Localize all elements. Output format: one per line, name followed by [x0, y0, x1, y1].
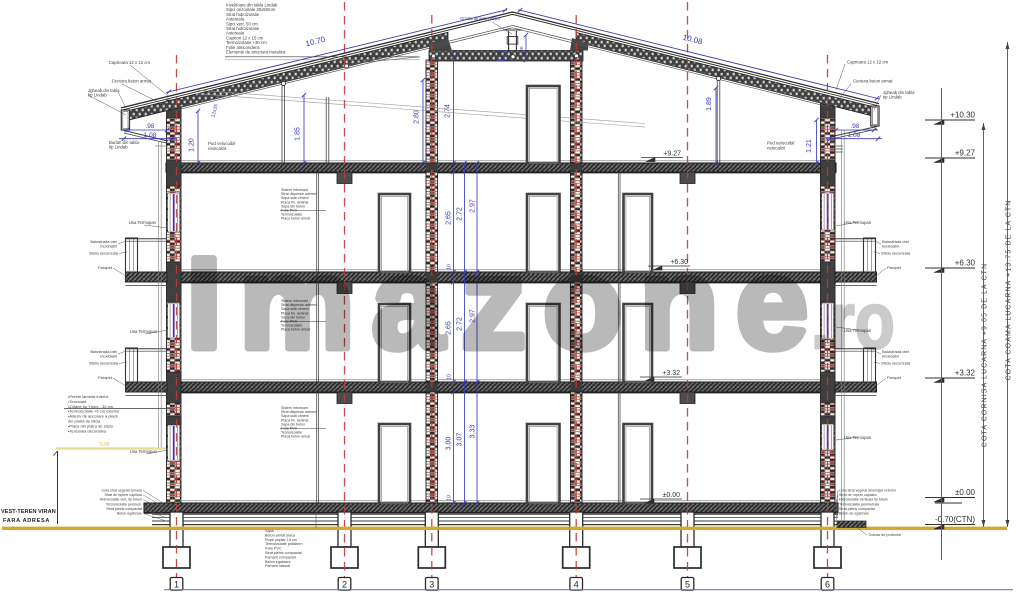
svg-text:Cota strat vegetal amenajat ex: Cota strat vegetal amenajat exterior: [839, 489, 897, 493]
svg-text:Sticla securizata: Sticla securizata: [881, 251, 911, 256]
svg-text:Usa Termopan: Usa Termopan: [130, 329, 158, 334]
svg-text:3.07: 3.07: [457, 433, 464, 447]
svg-text:+3.32: +3.32: [955, 369, 976, 378]
svg-text:COTA COAMA LUCARNA +13.75 DE L: COTA COAMA LUCARNA +13.75 DE LA CTN: [1006, 200, 1013, 381]
svg-text:Hidroizolatie vert. tip bitum: Hidroizolatie vert. tip bitum: [100, 498, 142, 502]
svg-text:4: 4: [574, 579, 579, 589]
svg-text:Usa Termopan: Usa Termopan: [844, 435, 872, 440]
svg-text:.98: .98: [145, 123, 154, 130]
svg-text:inoxidabil: inoxidabil: [100, 244, 117, 249]
svg-text:2.72: 2.72: [457, 207, 464, 221]
svg-text:Rupe capilar 15 cm: Rupe capilar 15 cm: [265, 538, 297, 542]
svg-text:6: 6: [825, 579, 830, 589]
svg-text:Parapet: Parapet: [887, 265, 902, 270]
svg-text:.98: .98: [850, 123, 859, 130]
svg-text:Usa Termopan: Usa Termopan: [844, 220, 872, 225]
svg-text:Sticla securizata: Sticla securizata: [89, 251, 119, 256]
svg-text:1.21: 1.21: [806, 139, 813, 153]
svg-text:Strat de rupere capilara: Strat de rupere capilara: [104, 493, 142, 497]
svg-text:60: 60: [519, 46, 524, 52]
svg-text:Caprioara 12 x 12 cm: Caprioara 12 x 12 cm: [847, 60, 888, 65]
svg-text:±0.00: ±0.00: [955, 488, 976, 497]
svg-text:1.08: 1.08: [848, 132, 861, 139]
svg-text:Beton egalizare: Beton egalizare: [265, 560, 291, 564]
svg-text:Pamant natural: Pamant natural: [265, 564, 290, 568]
svg-text:Pamant compactat: Pamant compactat: [265, 555, 296, 559]
svg-text:10: 10: [447, 495, 453, 501]
svg-text:2.80: 2.80: [414, 110, 421, 124]
svg-text:1.85: 1.85: [295, 127, 302, 141]
svg-text:Imazone: Imazone: [186, 230, 825, 376]
svg-text:1: 1: [174, 579, 179, 589]
svg-text:1.08: 1.08: [144, 132, 157, 139]
svg-text:Usa Termopan: Usa Termopan: [129, 220, 157, 225]
svg-text:2: 2: [342, 579, 347, 589]
svg-text:+9.27: +9.27: [955, 149, 976, 158]
svg-text:tip Lindab: tip Lindab: [88, 93, 107, 98]
svg-text:Beton egalizare: Beton egalizare: [117, 512, 142, 516]
svg-text:Placa beton armat: Placa beton armat: [281, 435, 310, 439]
svg-text:Cota strat vegetal armare: Cota strat vegetal armare: [101, 489, 142, 493]
svg-text:.ro: .ro: [811, 276, 895, 366]
svg-text:Trotuar de protectie: Trotuar de protectie: [868, 533, 901, 537]
svg-text:Parapet: Parapet: [98, 265, 113, 270]
svg-text:5.06: 5.06: [100, 442, 110, 448]
svg-text:Folie PVC: Folie PVC: [265, 547, 282, 551]
svg-text:Grinda de lemn 60cm: Grinda de lemn 60cm: [460, 16, 501, 21]
svg-text:2.97: 2.97: [470, 199, 477, 213]
svg-text:Strat pietris compactat: Strat pietris compactat: [265, 551, 302, 555]
svg-text:2.74: 2.74: [445, 104, 452, 118]
svg-text:Parapet: Parapet: [887, 375, 902, 380]
svg-text:Termoizolatie polistiren: Termoizolatie polistiren: [265, 542, 303, 546]
svg-text:Termoizolatie perimetrala: Termoizolatie perimetrala: [839, 502, 879, 506]
svg-text:±0.00: ±0.00: [663, 492, 681, 499]
svg-text:inoxidabil: inoxidabil: [882, 244, 899, 249]
svg-text:Termoizolatie perimetr.: Termoizolatie perimetr.: [106, 502, 142, 506]
svg-text:3: 3: [429, 579, 434, 589]
svg-text:Sticla securizata: Sticla securizata: [89, 361, 119, 366]
svg-text:Strat de rupere capilara: Strat de rupere capilara: [839, 493, 877, 497]
svg-text:COTA CORNISA LUCARNA +9.05 DE: COTA CORNISA LUCARNA +9.05 DE LA CTN: [982, 263, 989, 447]
svg-text:neincalzit: neincalzit: [208, 146, 227, 151]
svg-text:1.20: 1.20: [189, 138, 196, 152]
svg-text:Beton de egalizare: Beton de egalizare: [839, 512, 869, 516]
svg-text:tip Lindab: tip Lindab: [109, 145, 128, 150]
svg-text:Centura beton armat: Centura beton armat: [853, 79, 893, 84]
svg-text:Elemente de structura metalica: Elemente de structura metalica: [226, 50, 286, 55]
svg-text:•Tencuiala decorativa: •Tencuiala decorativa: [68, 428, 107, 433]
svg-text:Sapa: Sapa: [265, 529, 275, 533]
svg-text:Caprioara 12 x 12 cm: Caprioara 12 x 12 cm: [109, 60, 150, 65]
svg-text:FARA ADRESA: FARA ADRESA: [3, 518, 50, 524]
svg-text:Usa Termopan: Usa Termopan: [130, 449, 158, 454]
svg-text:+9.27: +9.27: [663, 151, 681, 158]
svg-text:1.89: 1.89: [706, 97, 713, 111]
svg-text:neincalzit: neincalzit: [767, 146, 786, 151]
svg-text:Beton armat placa: Beton armat placa: [265, 533, 296, 537]
svg-text:2.65: 2.65: [446, 211, 453, 225]
svg-text:3.33: 3.33: [470, 425, 477, 439]
svg-text:Strat pietris compactat: Strat pietris compactat: [839, 507, 875, 511]
svg-text:Centura beton armat: Centura beton armat: [112, 79, 152, 84]
svg-text:tip Lindab: tip Lindab: [883, 95, 902, 100]
svg-text:Placa beton armat: Placa beton armat: [281, 217, 310, 221]
svg-text:+6.30: +6.30: [955, 259, 976, 268]
svg-text:Hidroizolatie verticala tip bi: Hidroizolatie verticala tip bitum: [839, 498, 888, 502]
svg-text:Parapet: Parapet: [98, 375, 113, 380]
svg-text:VEST-TEREN VIRAN: VEST-TEREN VIRAN: [1, 509, 56, 515]
svg-text:3.00: 3.00: [446, 437, 453, 451]
svg-text:+10.30: +10.30: [950, 111, 975, 120]
svg-text:Strat pietris compactat: Strat pietris compactat: [106, 507, 142, 511]
svg-text:5: 5: [685, 579, 690, 589]
svg-text:inoxidabil: inoxidabil: [100, 354, 117, 359]
